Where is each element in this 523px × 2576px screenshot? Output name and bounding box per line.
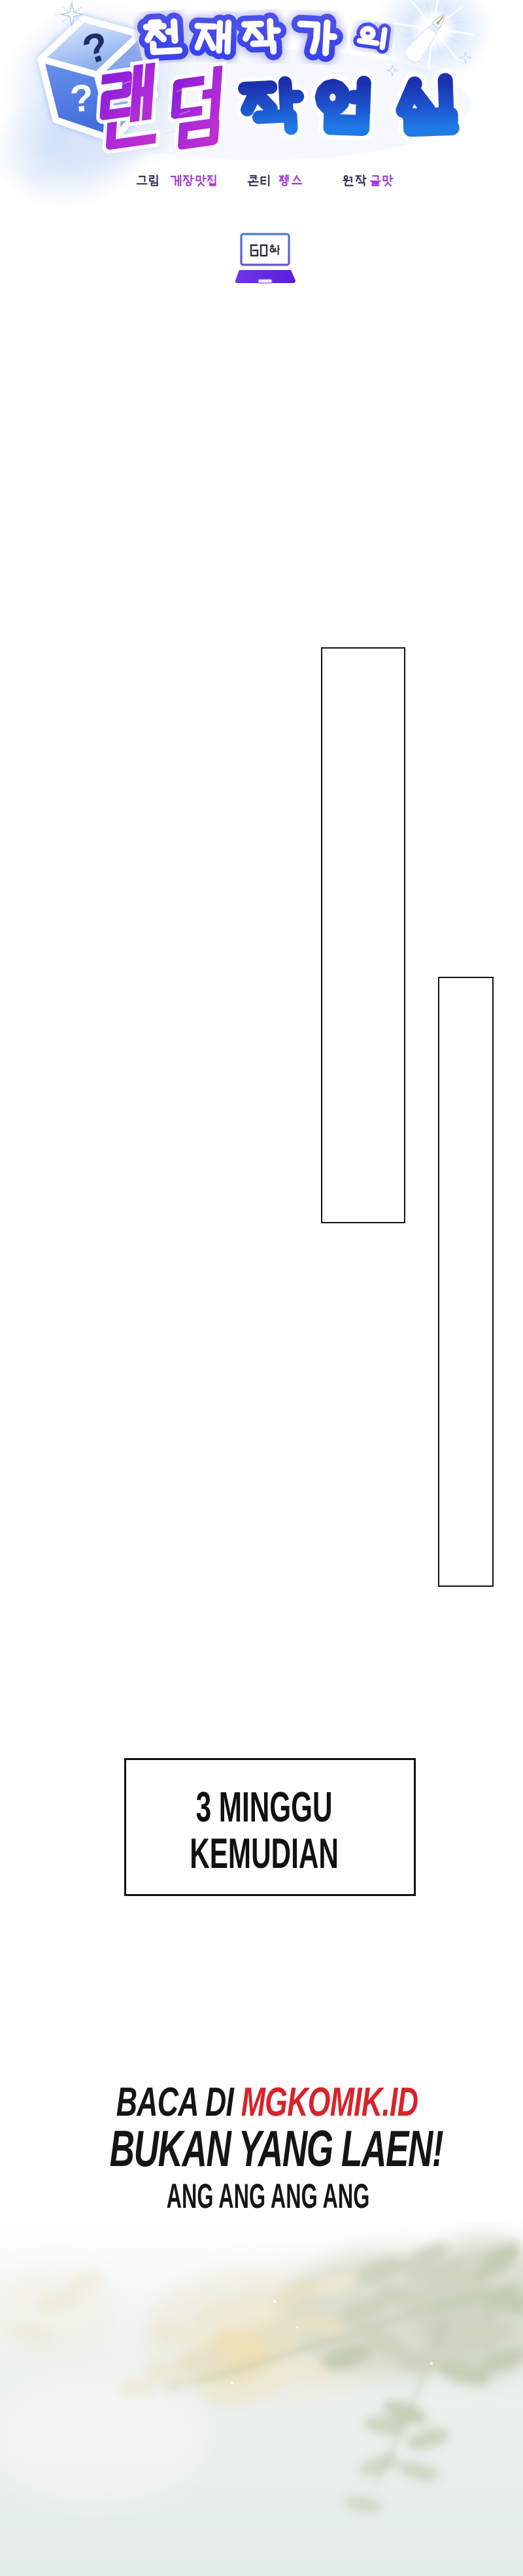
svg-text:?: ? xyxy=(69,76,95,120)
